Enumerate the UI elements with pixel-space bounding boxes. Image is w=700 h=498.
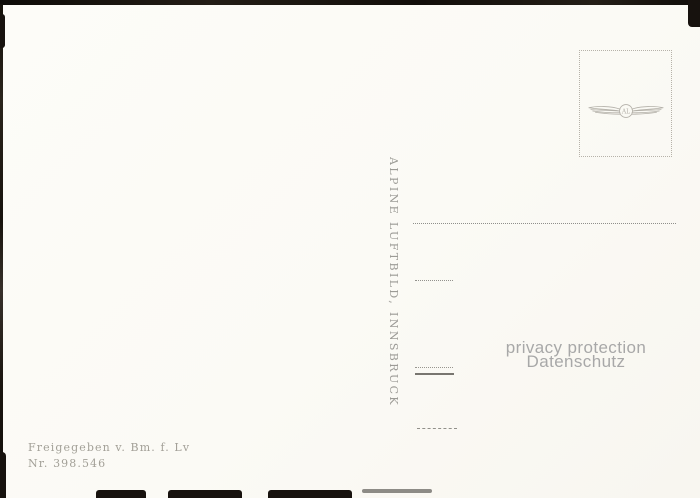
address-line-long <box>413 223 676 224</box>
address-line-stub-1 <box>415 280 453 281</box>
photo-edge-bottom-2 <box>168 490 242 498</box>
photo-edge-left-bottom <box>0 452 6 498</box>
stamp-monogram: AL <box>620 108 629 115</box>
postcard-back: AL ALPINE LUFTBILD, INNSBRUCK Freigegebe… <box>0 0 700 498</box>
approval-line-2: Nr. 398.546 <box>28 456 190 472</box>
photo-edge-bottom-3 <box>268 490 352 498</box>
privacy-watermark: privacy protection Datenschutz <box>486 341 666 369</box>
photo-edge-left-notch <box>0 14 5 48</box>
photo-edge-bottom-1 <box>96 490 146 498</box>
address-line-stub-2-bold <box>415 373 454 375</box>
publisher-imprint: ALPINE LUFTBILD, INNSBRUCK <box>387 157 400 389</box>
postcard-scan: AL ALPINE LUFTBILD, INNSBRUCK Freigegebe… <box>0 0 700 498</box>
winged-circle-emblem-icon: AL <box>587 99 665 123</box>
address-line-stub-2 <box>415 367 453 368</box>
approval-line-1: Freigegeben v. Bm. f. Lv <box>28 440 190 456</box>
address-line-stub-3 <box>417 428 457 429</box>
watermark-line-2: Datenschutz <box>486 355 666 369</box>
censor-approval-note: Freigegeben v. Bm. f. Lv Nr. 398.546 <box>28 440 190 472</box>
photo-edge-top <box>0 0 700 5</box>
photo-edge-bottom-shadow <box>362 489 432 493</box>
photo-edge-left <box>0 4 3 482</box>
stamp-box: AL <box>579 50 672 157</box>
photo-edge-top-right <box>688 0 700 27</box>
